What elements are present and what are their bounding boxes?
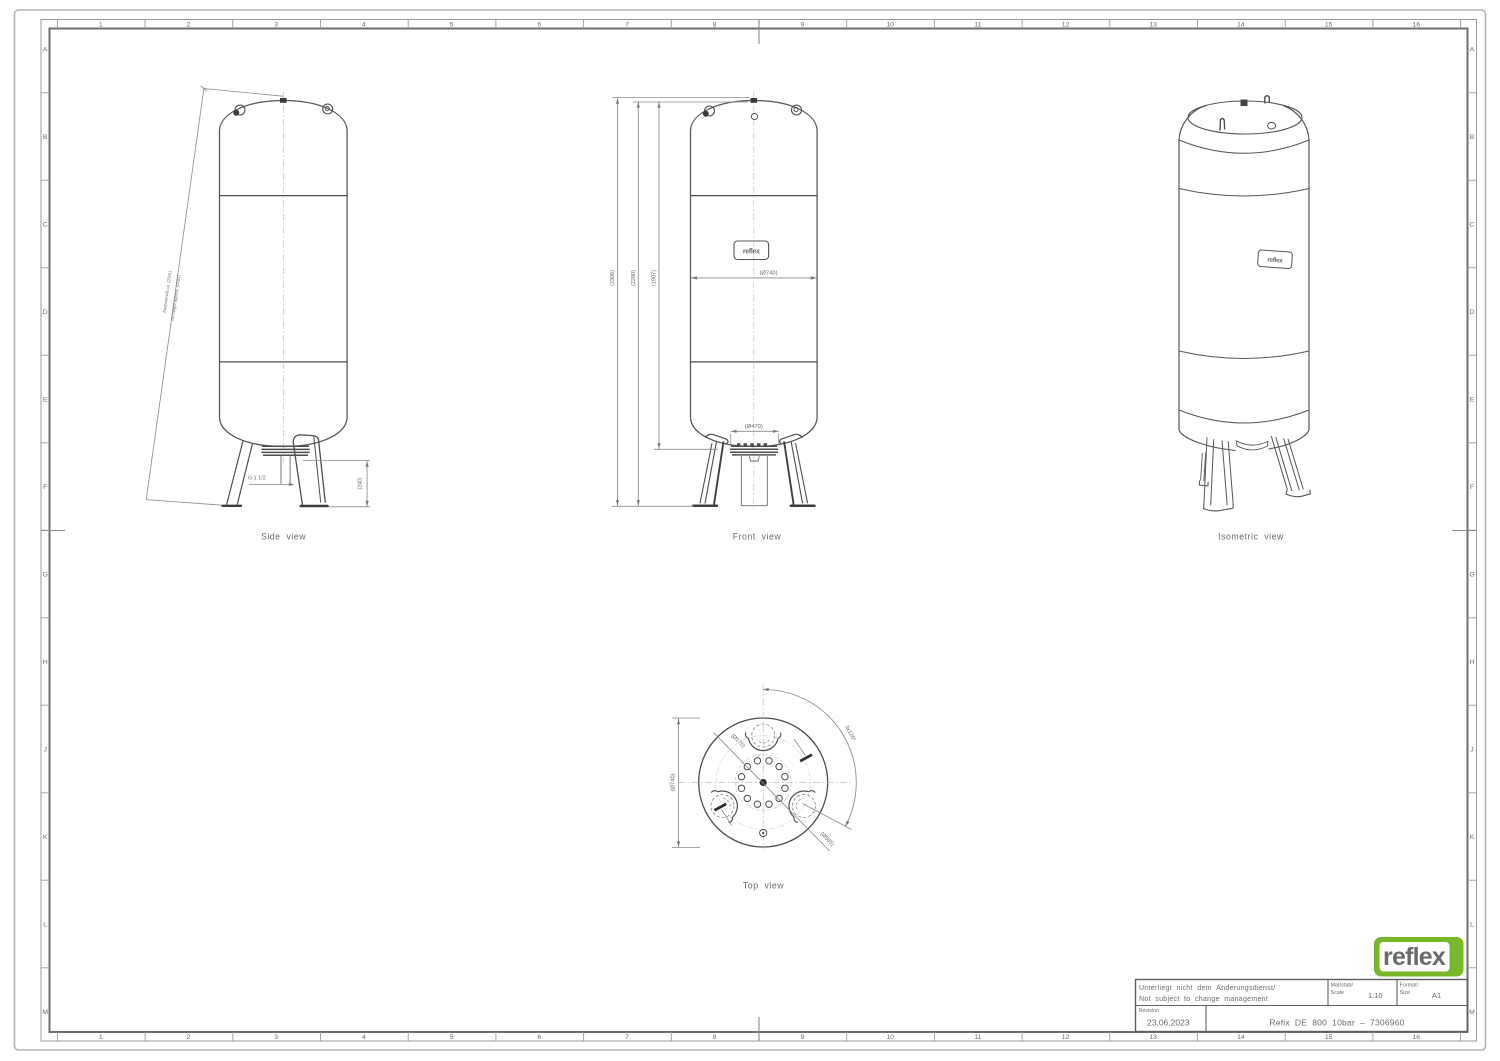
svg-text:(2306): (2306) <box>610 270 616 286</box>
svg-text:16: 16 <box>1413 1034 1421 1041</box>
svg-text:15: 15 <box>1325 22 1333 29</box>
svg-text:Isometric view: Isometric view <box>1218 532 1284 542</box>
svg-text:B: B <box>1470 134 1475 141</box>
svg-text:2: 2 <box>187 1034 191 1041</box>
svg-text:8: 8 <box>713 1034 717 1041</box>
svg-text:8: 8 <box>713 22 717 29</box>
svg-text:3: 3 <box>274 22 278 29</box>
svg-text:M: M <box>42 1009 48 1016</box>
svg-text:4: 4 <box>362 1034 366 1041</box>
svg-text:5: 5 <box>450 1034 454 1041</box>
svg-text:4: 4 <box>362 22 366 29</box>
svg-text:11: 11 <box>974 22 981 29</box>
svg-text:D: D <box>1470 309 1475 316</box>
svg-text:1: 1 <box>99 22 103 29</box>
svg-text:7: 7 <box>625 1034 629 1041</box>
svg-text:Front view: Front view <box>733 532 782 542</box>
svg-text:10: 10 <box>886 1034 894 1041</box>
svg-text:(240): (240) <box>357 477 363 489</box>
svg-text:K: K <box>43 834 48 841</box>
svg-text:G 1 1/2: G 1 1/2 <box>248 476 266 482</box>
svg-text:23.06.2023: 23.06.2023 <box>1147 1018 1190 1028</box>
svg-text:E: E <box>43 396 48 403</box>
svg-text:1:10: 1:10 <box>1368 991 1383 1000</box>
svg-text:Scale: Scale <box>1331 990 1345 996</box>
svg-text:L: L <box>43 921 47 928</box>
svg-text:reflex: reflex <box>1383 943 1446 971</box>
svg-text:K: K <box>1470 834 1475 841</box>
svg-text:J: J <box>1470 746 1473 753</box>
svg-text:G: G <box>43 571 48 578</box>
svg-text:J: J <box>43 746 46 753</box>
svg-text:15: 15 <box>1325 1034 1333 1041</box>
svg-text:13: 13 <box>1149 22 1157 29</box>
svg-text:2: 2 <box>187 22 191 29</box>
svg-text:13: 13 <box>1149 1034 1157 1041</box>
svg-text:Maßstab/: Maßstab/ <box>1331 983 1354 989</box>
svg-text:Side view: Side view <box>261 532 306 542</box>
svg-text:B: B <box>43 134 48 141</box>
svg-text:Unterliegt nicht dem Änderu: Unterliegt nicht dem Änderungsdienst/ <box>1139 984 1276 992</box>
svg-text:M: M <box>1469 1009 1475 1016</box>
svg-text:(Ø740): (Ø740) <box>759 271 777 277</box>
svg-text:7: 7 <box>625 22 629 29</box>
svg-text:C: C <box>1470 221 1475 228</box>
svg-text:G: G <box>1469 571 1474 578</box>
svg-text:Not subject to change mana: Not subject to change management <box>1139 996 1268 1003</box>
svg-text:C: C <box>43 221 48 228</box>
svg-text:A: A <box>1470 46 1475 53</box>
svg-text:F: F <box>1470 484 1474 491</box>
svg-text:H: H <box>43 659 48 666</box>
svg-text:5: 5 <box>450 22 454 29</box>
svg-text:10: 10 <box>886 22 894 29</box>
svg-text:reflex: reflex <box>1267 256 1283 264</box>
svg-text:(Ø470): (Ø470) <box>745 424 763 430</box>
svg-text:9: 9 <box>801 22 805 29</box>
svg-text:(1907): (1907) <box>652 270 658 286</box>
svg-text:12: 12 <box>1062 1034 1070 1041</box>
svg-text:F: F <box>43 484 47 491</box>
svg-text:9: 9 <box>801 1034 805 1041</box>
svg-text:Refix DE 800 10bar – 7306: Refix DE 800 10bar – 7306960 <box>1269 1018 1404 1028</box>
svg-text:12: 12 <box>1062 22 1070 29</box>
svg-text:L: L <box>1470 921 1474 928</box>
svg-text:3: 3 <box>274 1034 278 1041</box>
svg-text:H: H <box>1470 659 1475 666</box>
svg-text:Top view: Top view <box>743 881 784 891</box>
svg-text:14: 14 <box>1237 1034 1245 1041</box>
svg-text:Revision: Revision <box>1139 1008 1160 1014</box>
svg-text:E: E <box>1470 396 1475 403</box>
svg-text:14: 14 <box>1237 22 1245 29</box>
svg-text:11: 11 <box>974 1034 981 1041</box>
svg-text:A: A <box>43 46 48 53</box>
svg-text:6: 6 <box>537 1034 541 1041</box>
svg-text:Format/: Format/ <box>1400 983 1419 989</box>
svg-text:reflex: reflex <box>743 249 760 256</box>
svg-text:Size: Size <box>1400 990 1411 996</box>
svg-text:(Ø740): (Ø740) <box>671 773 677 791</box>
svg-text:6: 6 <box>537 22 541 29</box>
svg-text:16: 16 <box>1413 22 1421 29</box>
svg-text:1: 1 <box>99 1034 103 1041</box>
svg-text:(2280): (2280) <box>631 270 637 286</box>
svg-text:D: D <box>43 309 48 316</box>
svg-text:A1: A1 <box>1432 991 1441 1000</box>
